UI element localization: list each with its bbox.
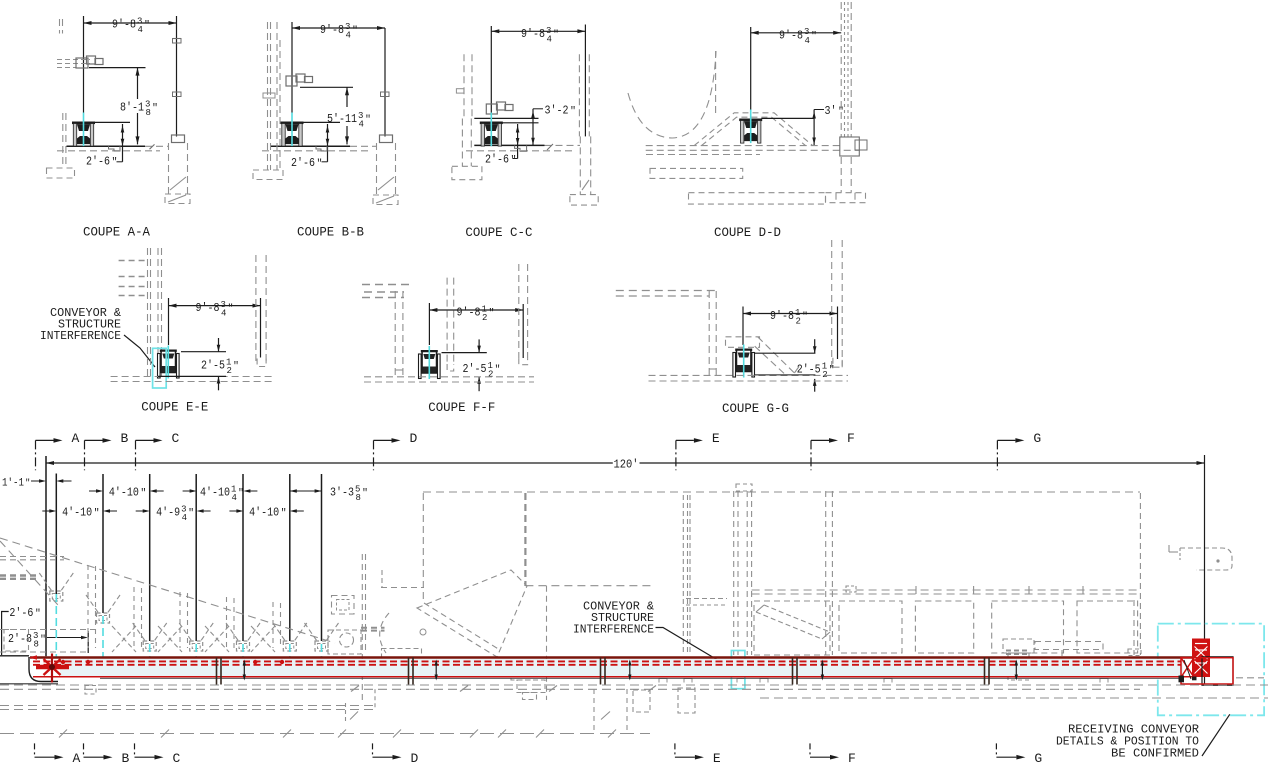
svg-text:″: ″: [238, 488, 244, 500]
svg-text:″: ″: [35, 608, 41, 620]
svg-text:C: C: [172, 431, 180, 446]
svg-text:″: ″: [25, 478, 30, 488]
svg-text:2: 2: [482, 313, 487, 323]
svg-text:4: 4: [805, 36, 810, 46]
svg-text:9'-8: 9'-8: [779, 28, 803, 42]
svg-text:″: ″: [362, 488, 368, 500]
svg-text:″: ″: [495, 364, 501, 376]
svg-text:5'-11: 5'-11: [327, 112, 357, 126]
svg-text:″: ″: [281, 508, 287, 520]
svg-text:9'-8: 9'-8: [770, 309, 794, 323]
svg-text:4'-10: 4'-10: [109, 486, 139, 500]
svg-text:E: E: [713, 751, 721, 766]
svg-text:4: 4: [182, 513, 187, 523]
svg-text:3'-3: 3'-3: [330, 486, 354, 500]
svg-text:″: ″: [570, 106, 576, 118]
svg-text:4: 4: [346, 31, 351, 41]
svg-text:8'-1: 8'-1: [120, 101, 144, 115]
svg-text:″: ″: [233, 361, 239, 373]
svg-text:2'-6: 2'-6: [291, 156, 315, 170]
svg-text:3': 3': [825, 104, 837, 118]
svg-text:B: B: [121, 431, 129, 446]
svg-text:9'-8: 9'-8: [521, 27, 545, 41]
svg-text:D: D: [410, 431, 418, 446]
svg-text:2'-6: 2'-6: [485, 153, 509, 167]
svg-text:F: F: [847, 431, 855, 446]
svg-text:″: ″: [802, 311, 808, 323]
svg-text:COUPE F-F: COUPE F-F: [428, 400, 495, 415]
svg-text:COUPE D-D: COUPE D-D: [714, 225, 781, 240]
svg-text:2: 2: [488, 370, 493, 380]
svg-text:4: 4: [138, 25, 143, 35]
svg-text:″: ″: [144, 20, 150, 32]
svg-text:4: 4: [359, 120, 364, 130]
svg-text:″: ″: [811, 30, 817, 42]
svg-text:″: ″: [317, 158, 323, 170]
svg-text:120': 120': [614, 458, 639, 472]
svg-text:4'-10: 4'-10: [249, 506, 279, 520]
svg-text:B: B: [122, 751, 130, 766]
svg-text:9'-8: 9'-8: [457, 306, 481, 320]
svg-text:A: A: [73, 751, 81, 766]
svg-text:″: ″: [365, 114, 371, 126]
svg-text:4'-10: 4'-10: [62, 506, 92, 520]
svg-text:″: ″: [188, 508, 194, 520]
svg-text:4: 4: [547, 35, 552, 45]
svg-text:″: ″: [40, 634, 46, 646]
svg-text:COUPE E-E: COUPE E-E: [141, 400, 208, 415]
svg-text:″: ″: [152, 103, 158, 115]
svg-text:″: ″: [489, 308, 495, 320]
svg-text:″: ″: [140, 488, 146, 500]
svg-text:G: G: [1034, 751, 1042, 766]
svg-text:4: 4: [221, 309, 226, 319]
svg-text:9'-8: 9'-8: [320, 23, 344, 37]
svg-text:″: ″: [829, 365, 835, 377]
svg-text:″: ″: [352, 25, 358, 37]
svg-text:4'-9: 4'-9: [156, 506, 180, 520]
svg-text:9'-8: 9'-8: [196, 301, 220, 315]
svg-text:″: ″: [94, 508, 100, 520]
svg-text:8: 8: [34, 640, 39, 650]
svg-text:″: ″: [511, 155, 517, 167]
svg-text:E: E: [712, 431, 720, 446]
svg-text:COUPE G-G: COUPE G-G: [722, 401, 789, 416]
svg-text:4: 4: [232, 493, 237, 503]
svg-text:2'-5: 2'-5: [201, 359, 225, 373]
svg-text:D: D: [411, 751, 419, 766]
svg-text:G: G: [1033, 431, 1041, 446]
svg-text:BE CONFIRMED: BE CONFIRMED: [1111, 747, 1199, 761]
svg-text:2'-5: 2'-5: [463, 362, 487, 376]
svg-text:INTERFERENCE: INTERFERENCE: [40, 329, 121, 343]
svg-text:3'-2: 3'-2: [545, 104, 569, 118]
svg-text:2: 2: [227, 366, 232, 376]
svg-text:9'-8: 9'-8: [112, 18, 136, 32]
svg-text:INTERFERENCE: INTERFERENCE: [573, 623, 654, 637]
svg-text:″: ″: [228, 303, 234, 315]
svg-text:8: 8: [146, 108, 151, 118]
svg-text:2'-6: 2'-6: [9, 606, 33, 620]
svg-text:COUPE A-A: COUPE A-A: [83, 225, 150, 240]
svg-text:2'-6: 2'-6: [86, 155, 110, 169]
svg-text:1'-1: 1'-1: [2, 477, 24, 489]
svg-text:COUPE C-C: COUPE C-C: [465, 225, 532, 240]
svg-text:C: C: [173, 751, 181, 766]
svg-text:8: 8: [356, 493, 361, 503]
svg-text:COUPE B-B: COUPE B-B: [297, 225, 364, 240]
svg-text:A: A: [72, 431, 80, 446]
svg-text:F: F: [848, 751, 856, 766]
svg-text:4'-10: 4'-10: [200, 486, 230, 500]
svg-text:2: 2: [796, 317, 801, 327]
svg-text:″: ″: [553, 29, 559, 41]
svg-text:″: ″: [112, 157, 118, 169]
